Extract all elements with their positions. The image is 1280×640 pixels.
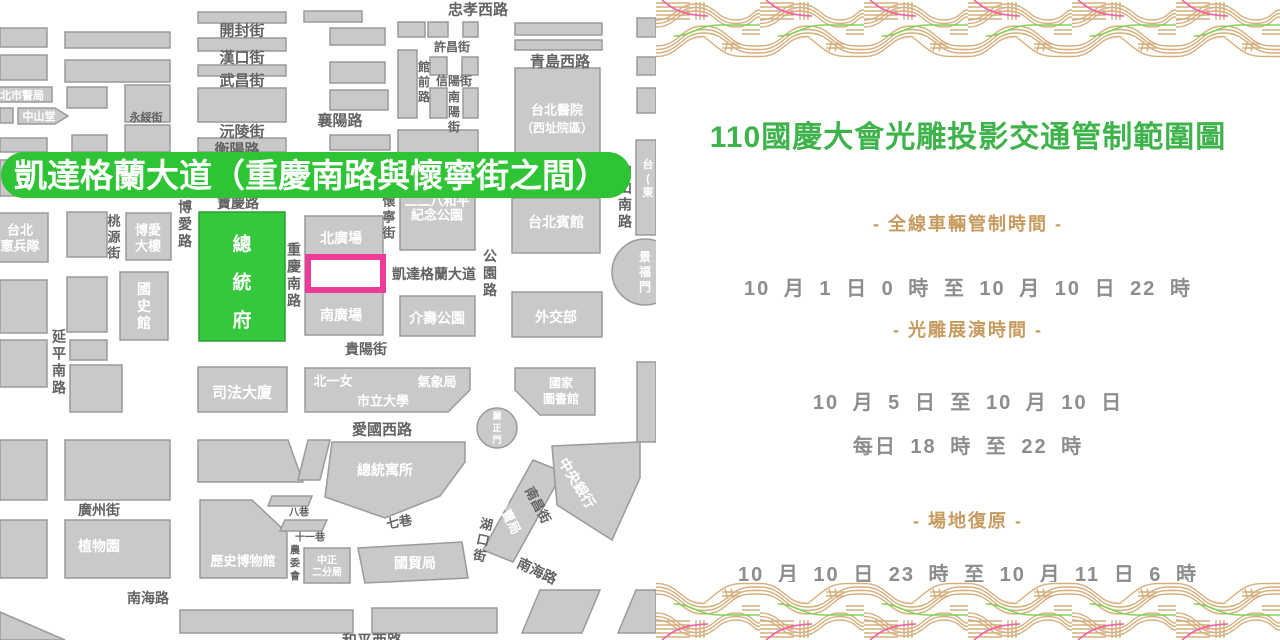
map-label: 開封街 (219, 21, 264, 39)
map-label: 介壽公園 (408, 310, 465, 326)
map-label: 延平南路 (51, 328, 67, 395)
map-label: 貴陽街 (345, 341, 387, 357)
map-label: 漢口街 (219, 48, 264, 66)
map-block (637, 88, 656, 113)
map-block (0, 340, 47, 387)
map-label: 台北醫院 (531, 103, 583, 118)
map-block (0, 520, 47, 578)
map-label: 南海路 (515, 555, 561, 588)
map-block (637, 362, 656, 442)
map-block (125, 125, 170, 152)
light-show-dates: 10 月 5 日 至 10 月 10 日 (656, 386, 1280, 415)
map-block (330, 28, 385, 45)
map-label: 桃源街 (106, 214, 120, 261)
map-block (398, 50, 417, 118)
map-label: 重慶南路 (287, 241, 302, 308)
map-block (65, 60, 170, 82)
road-closure-banner-text: 凱達格蘭大道（重慶南路與懷寧街之間） (14, 157, 608, 194)
map-block (65, 440, 170, 500)
map-label: 南陽街 (447, 89, 460, 134)
map-label: 司法大廈 (212, 383, 272, 401)
map-block (430, 57, 447, 75)
map-label: 永綏街 (129, 110, 163, 124)
map-label: 植物園 (77, 538, 120, 554)
map-label: 農委會 (289, 544, 301, 583)
map-block (462, 57, 478, 75)
map-label: 公園路 (483, 248, 498, 298)
map-label: 國貿局 (394, 555, 436, 571)
map-label: 國家 (549, 375, 574, 390)
map-label: 總統寓所 (357, 462, 413, 478)
map-label: 武昌街 (219, 71, 264, 89)
map-block (304, 11, 362, 22)
map-block (180, 610, 353, 633)
map-label: 中山堂 (23, 109, 56, 123)
map-block (72, 135, 107, 152)
decorative-border-bottom (656, 582, 1280, 640)
map-block (398, 22, 425, 37)
map-block (515, 40, 602, 50)
vehicle-control-period: 10 月 1 日 0 時 至 10 月 10 日 22 時 (656, 272, 1280, 301)
map-block (522, 590, 600, 633)
map-block (0, 108, 13, 123)
section-heading-site-restore: - 場地復原 - (656, 507, 1280, 533)
map-label: 氣象局 (417, 375, 456, 390)
map-block (0, 612, 65, 640)
map-label: 懷寧街 (381, 194, 395, 241)
map-label: 八巷 (288, 506, 310, 519)
map-label: 紀念公園 (411, 208, 463, 223)
map-label: 二分局 (312, 566, 342, 579)
map-label: 七巷 (385, 512, 414, 531)
map-label: 沅陵街 (219, 122, 264, 140)
map-label: 信陽街 (436, 73, 472, 88)
map-label: 歷史博物館 (210, 554, 275, 569)
map-label: 大樓 (135, 239, 161, 254)
map-block (330, 62, 385, 83)
map-label: 十一巷 (295, 531, 326, 544)
section-heading-light-show: - 光雕展演時間 - (656, 316, 1280, 342)
map-label: 台北賓館 (528, 214, 584, 230)
map-block (67, 87, 107, 108)
announcement-image: 忠孝西路開封街漢口街武昌街沅陵街衡陽路襄陽路永綏街許昌街信陽街青島西路寶慶路凱達… (0, 0, 1280, 640)
map-block (637, 57, 656, 75)
map-block (0, 138, 47, 152)
map-block (463, 22, 478, 37)
map-block (298, 440, 330, 480)
map-block (70, 365, 122, 412)
map-block (515, 23, 602, 35)
map-label: 北市警局 (0, 88, 44, 102)
map-label: 襄陽路 (316, 111, 363, 129)
map-block (463, 88, 478, 118)
map-block (330, 135, 390, 150)
map-block (637, 18, 656, 37)
map-label: 和平西路 (342, 631, 403, 640)
map-label: 總統府 (232, 233, 251, 332)
map-block (325, 442, 465, 518)
traffic-map-panel: 忠孝西路開封街漢口街武昌街沅陵街衡陽路襄陽路永綏街許昌街信陽街青島西路寶慶路凱達… (0, 0, 656, 640)
map-block (0, 280, 47, 333)
map-label: 市立大學 (357, 394, 409, 409)
decorative-border-top (656, 0, 1280, 58)
map-label: 中正 (317, 554, 337, 567)
map-block (430, 88, 447, 118)
traffic-map: 忠孝西路開封街漢口街武昌街沅陵街衡陽路襄陽路永綏街許昌街信陽街青島西路寶慶路凱達… (0, 0, 656, 640)
map-block (268, 496, 312, 506)
map-label: 博愛 (135, 223, 161, 238)
map-label: 北一女 (313, 374, 352, 389)
map-block (0, 440, 47, 500)
page-title: 110國慶大會光雕投影交通管制範圍圖 (656, 112, 1280, 156)
map-label: 忠孝西路 (448, 0, 509, 18)
map-block (483, 460, 563, 562)
notice-panel: 110國慶大會光雕投影交通管制範圍圖 - 全線車輛管制時間 - 10 月 1 日… (656, 0, 1280, 640)
map-label: 愛國西路 (352, 420, 413, 438)
map-label: 凱達格蘭大道 (392, 266, 476, 282)
map-block (67, 277, 107, 332)
map-label: 博愛路 (178, 199, 193, 249)
map-block (70, 340, 107, 360)
map-label: 南廣場 (320, 307, 362, 323)
map-block (618, 590, 656, 633)
map-label: 南海路 (127, 590, 170, 606)
map-label: 台北 (7, 223, 33, 238)
map-label: 北廣場 (320, 230, 362, 246)
map-block (65, 32, 170, 48)
map-block (428, 22, 448, 37)
map-label: 青島西路 (530, 52, 591, 70)
map-label: 國史館 (136, 281, 152, 331)
map-block (0, 55, 47, 80)
map-label: 麗正門 (492, 411, 501, 445)
map-label: （西址院區） (521, 120, 593, 135)
closed-section-highlight (308, 257, 383, 290)
map-block (198, 440, 303, 482)
light-show-hours: 每日 18 時 至 22 時 (656, 430, 1280, 459)
section-heading-vehicle-control: - 全線車輛管制時間 - (656, 210, 1280, 236)
map-block (280, 520, 327, 531)
map-block (67, 212, 107, 257)
map-block (198, 88, 286, 122)
map-block (372, 608, 497, 633)
map-label: 許昌街 (434, 39, 470, 54)
map-block (330, 90, 388, 110)
map-label: 景福門 (638, 250, 651, 294)
map-label: 憲兵隊 (0, 239, 40, 254)
map-label: 圖書館 (543, 391, 579, 406)
map-label: 館前路 (417, 59, 431, 104)
map-label: 廣州街 (78, 502, 120, 518)
map-block (0, 28, 47, 47)
map-label: 外交部 (535, 309, 577, 325)
